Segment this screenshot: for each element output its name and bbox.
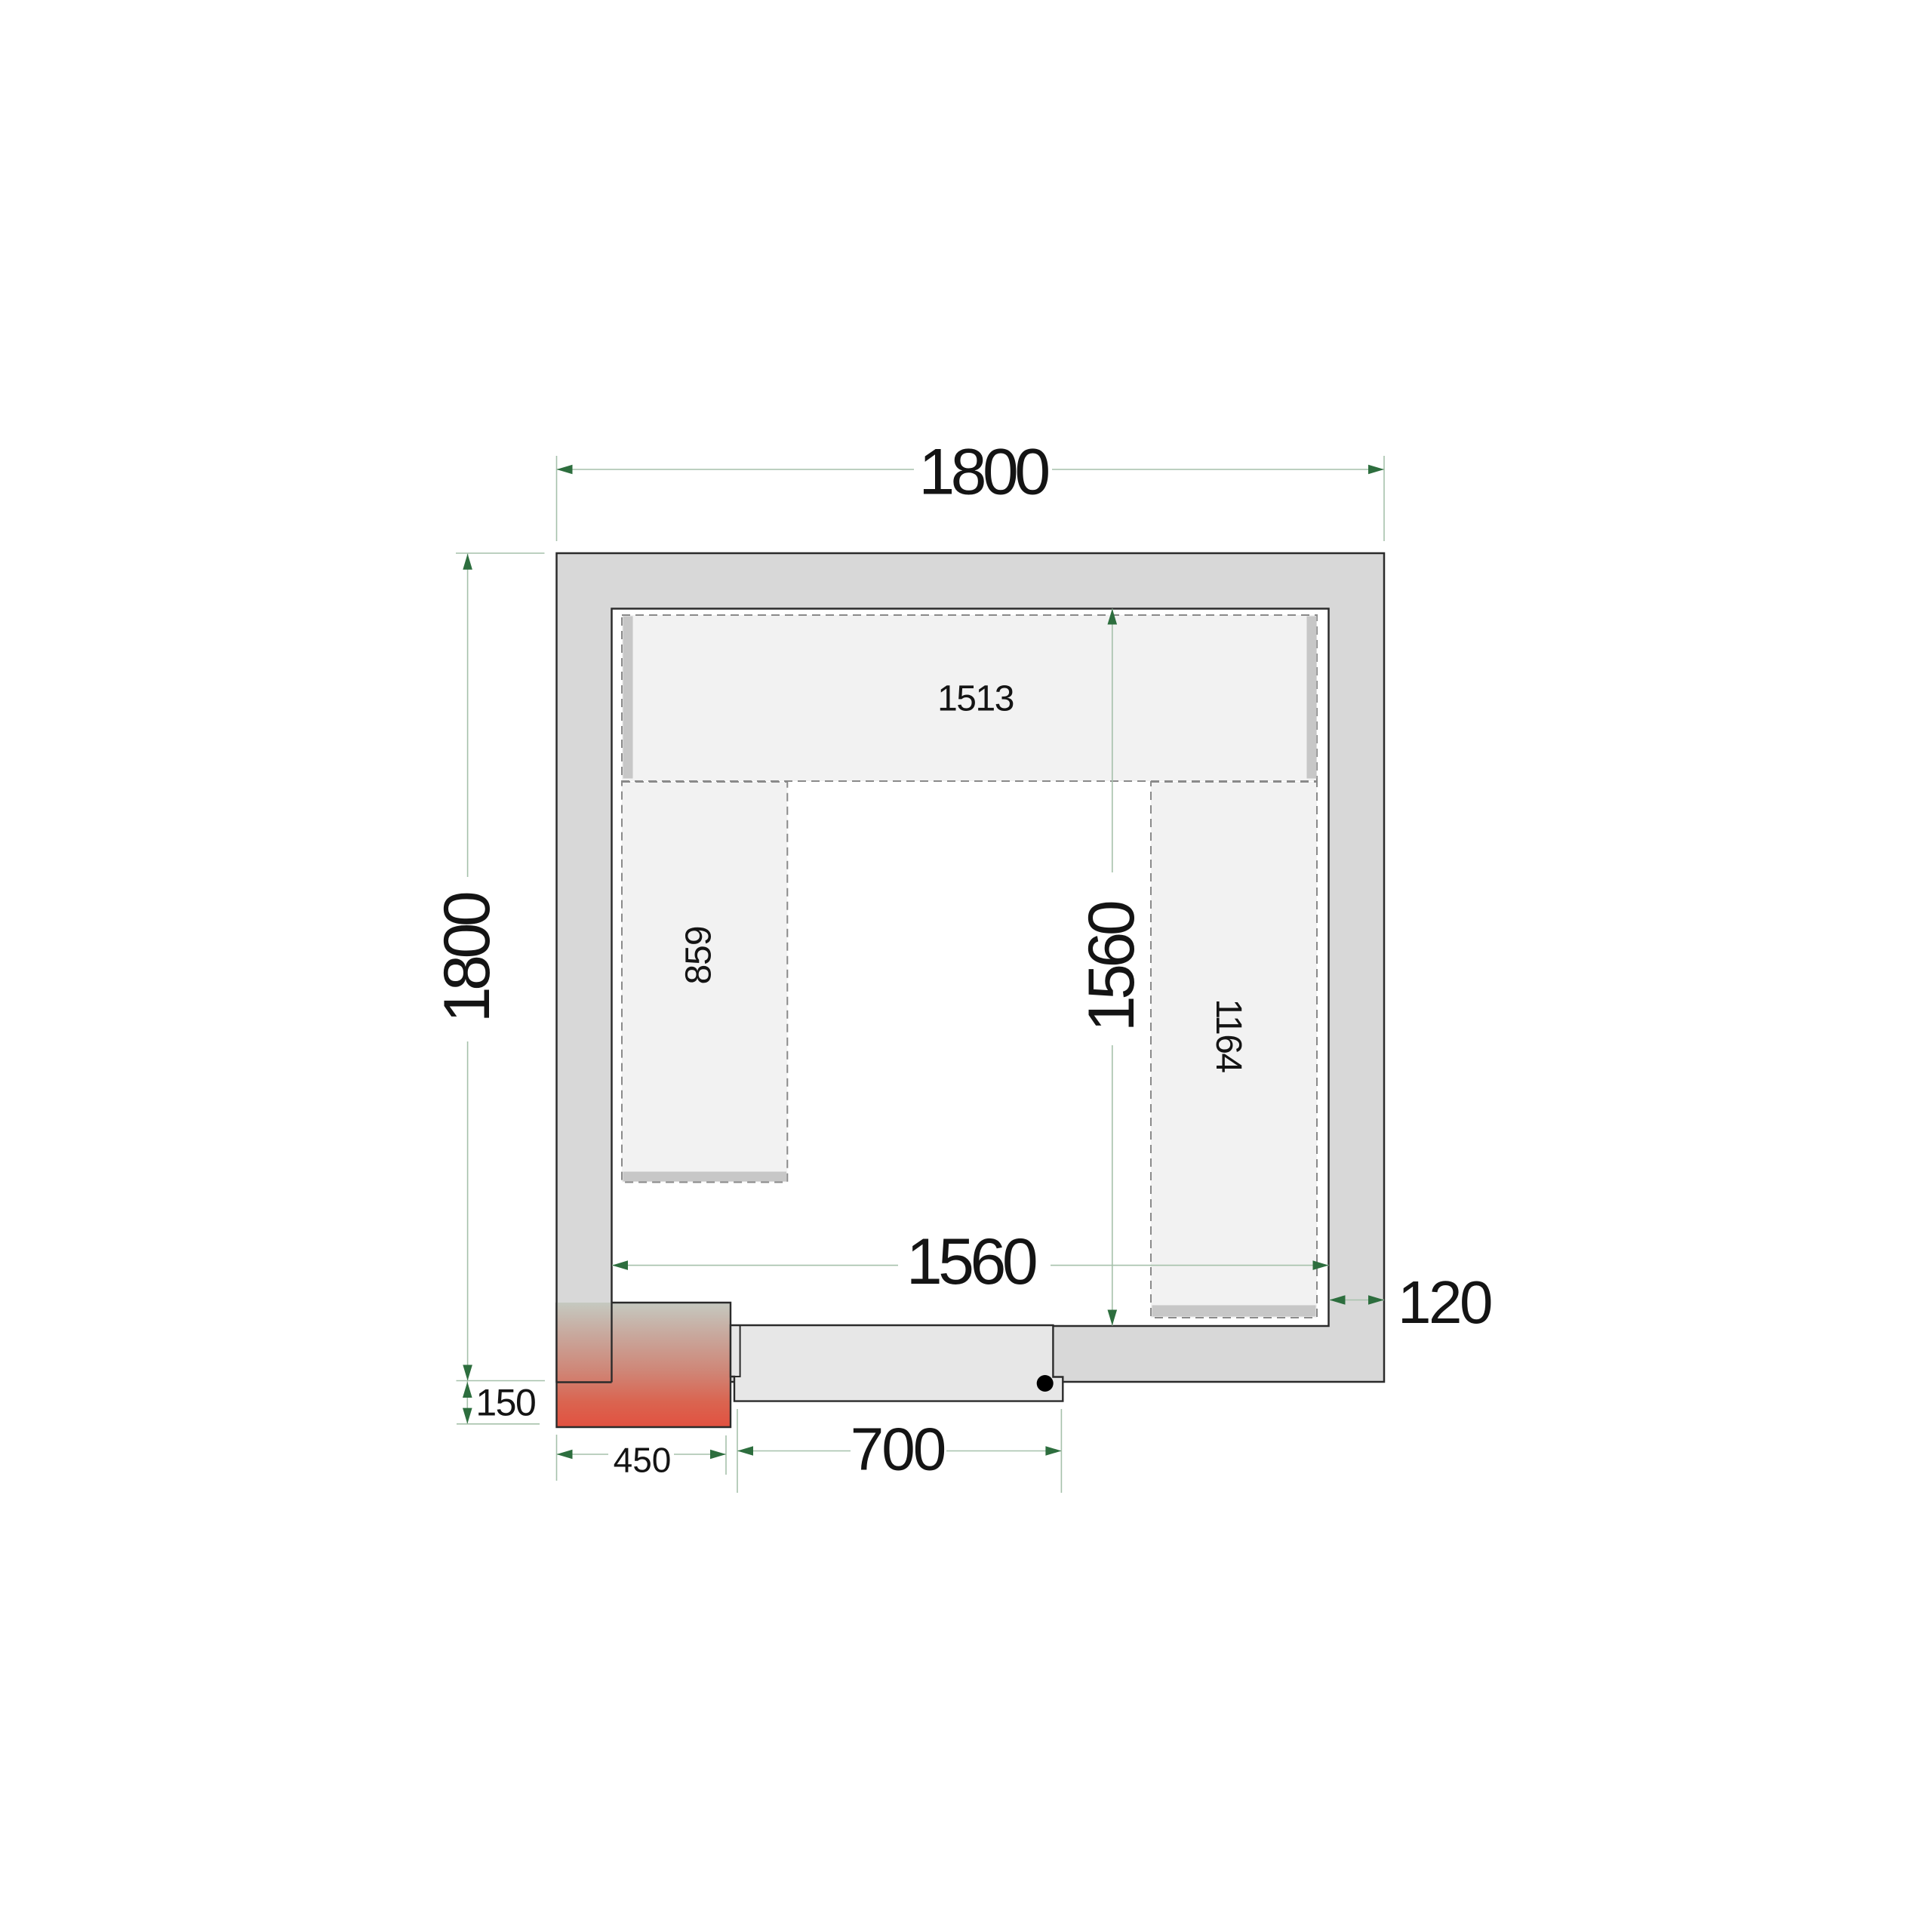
svg-text:859: 859 [679, 926, 719, 984]
svg-text:1560: 1560 [906, 1226, 1036, 1298]
svg-text:120: 120 [1398, 1269, 1491, 1336]
svg-text:700: 700 [851, 1415, 945, 1482]
svg-text:450: 450 [614, 1440, 672, 1479]
svg-text:1513: 1513 [937, 679, 1014, 719]
svg-text:1164: 1164 [1208, 998, 1248, 1072]
svg-text:150: 150 [475, 1382, 535, 1424]
svg-text:1560: 1560 [1075, 902, 1148, 1032]
svg-text:1800: 1800 [431, 893, 503, 1023]
svg-text:1800: 1800 [918, 435, 1048, 508]
